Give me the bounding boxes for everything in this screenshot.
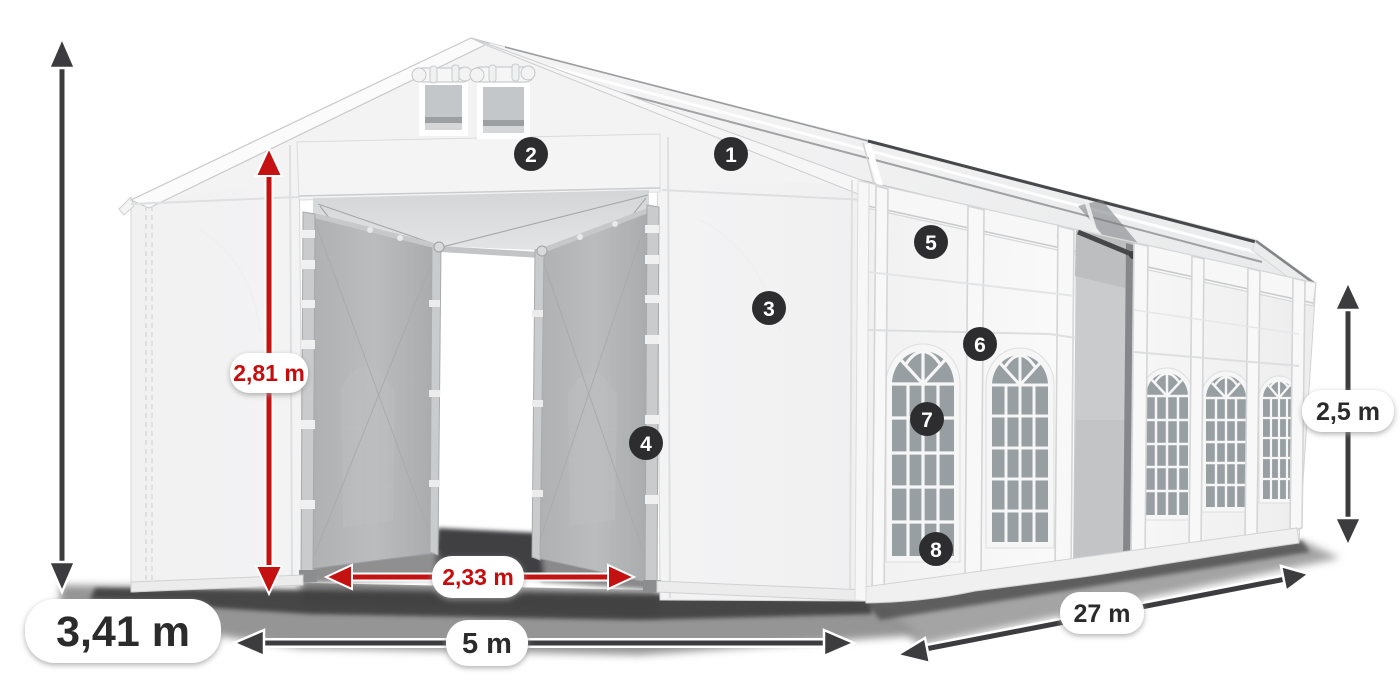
svg-text:2,81 m: 2,81 m (233, 360, 305, 386)
svg-text:5 m: 5 m (462, 628, 512, 660)
svg-text:3: 3 (763, 298, 775, 321)
svg-text:6: 6 (974, 334, 986, 357)
svg-text:3,41 m: 3,41 m (56, 608, 190, 656)
svg-text:8: 8 (930, 539, 942, 562)
svg-text:5: 5 (925, 232, 937, 255)
svg-text:2,33 m: 2,33 m (442, 564, 514, 590)
svg-text:2: 2 (525, 144, 537, 167)
svg-text:4: 4 (640, 433, 652, 456)
svg-text:2,5 m: 2,5 m (1316, 398, 1380, 426)
svg-text:7: 7 (921, 409, 933, 432)
svg-text:1: 1 (725, 144, 737, 167)
svg-text:27 m: 27 m (1074, 600, 1131, 628)
